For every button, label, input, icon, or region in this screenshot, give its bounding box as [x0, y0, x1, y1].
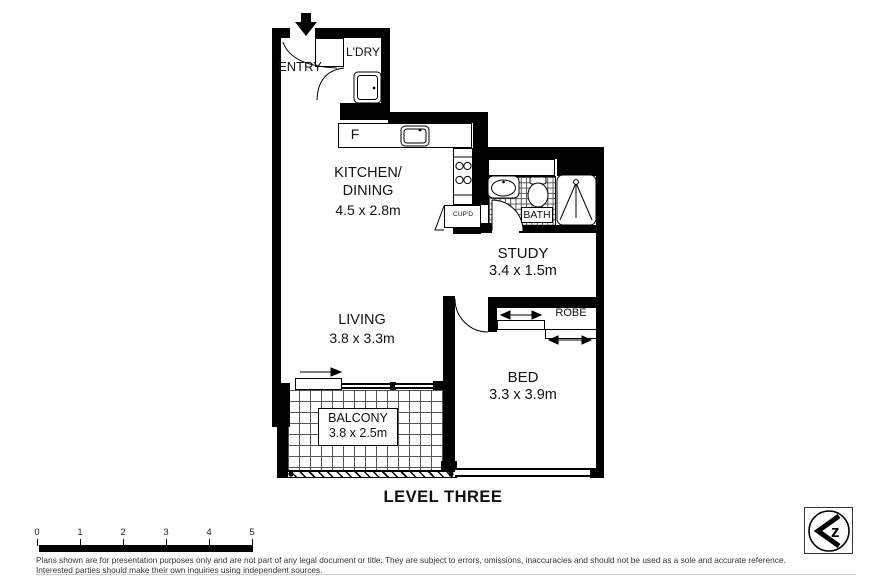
scale-label-2: 2: [120, 527, 125, 538]
disclaimer-line-1: Plans shown are for presentation purpose…: [36, 555, 786, 565]
scale-tick: [37, 539, 38, 546]
wall-balcony-left: [277, 427, 288, 478]
wall-cupboard-stub: [453, 227, 481, 234]
room-label-living: LIVING: [317, 313, 407, 328]
fridge-label: F: [338, 127, 372, 142]
kitchen-counter-column: [453, 148, 473, 205]
robe-sliding-arrow-top-icon: [501, 311, 541, 319]
sliding-door-arrow-icon: [300, 368, 341, 376]
wall-right-outer: [596, 147, 604, 478]
living-window-1: [342, 383, 390, 389]
scale-label-0: 0: [34, 527, 39, 538]
wall-robe-left: [488, 308, 497, 332]
sliding-door-panel: [295, 378, 342, 390]
scale-label-5: 5: [249, 527, 254, 538]
scale-label-3: 3: [163, 527, 168, 538]
room-dims-study: 3.4 x 1.5m: [475, 264, 571, 279]
living-window-2: [395, 383, 433, 389]
scale-label-4: 4: [206, 527, 211, 538]
room-label-laundry: L'DRY: [342, 46, 384, 59]
room-label-balcony: BALCONY: [318, 412, 398, 425]
page-title: LEVEL THREE: [330, 489, 556, 506]
room-label-entry: ENTRY: [274, 60, 326, 74]
room-label-study: STUDY: [475, 246, 571, 262]
wall-kitchen-top: [388, 112, 481, 123]
wall-robe-top: [488, 297, 604, 308]
entry-direction-arrow-icon: [295, 13, 317, 36]
wall-window-corner: [433, 381, 443, 390]
room-label-bath: BATH: [521, 207, 553, 223]
scale-bar-rule: [39, 545, 253, 552]
room-label-bed: BED: [478, 370, 568, 386]
room-label-kitchen-line2: DINING: [320, 184, 416, 199]
floor-plan: ENTRY L'DRY F KITCHEN/ DINING 4.5 x 2.8m…: [0, 0, 882, 577]
wall-left-chunk: [272, 383, 290, 427]
room-label-robe: ROBE: [548, 308, 594, 320]
shower-icon: [557, 175, 596, 225]
bath-vanity: [488, 159, 555, 176]
laundry-tub-icon: [354, 72, 381, 103]
room-dims-balcony: 3.8 x 2.5m: [318, 427, 398, 440]
cupboard-label: CUP'D: [446, 212, 480, 219]
brand-logo-mark: z: [805, 508, 852, 553]
bed-window: [455, 468, 590, 477]
cupboard-door-flap: [435, 206, 444, 230]
wall-laundry-top: [315, 28, 390, 38]
wall-laundry-bottom: [340, 103, 390, 120]
room-dims-kitchen: 4.5 x 2.8m: [320, 203, 416, 218]
wall-bath-bottom-stub: [481, 223, 492, 233]
wall-bath-bottom: [519, 225, 596, 233]
room-label-kitchen-line1: KITCHEN/: [320, 166, 416, 181]
logo-letter: z: [831, 522, 840, 541]
robe-sliding-panel-1: [497, 320, 545, 330]
wall-top-stub: [272, 28, 290, 38]
scale-label-1: 1: [77, 527, 82, 538]
room-dims-living: 3.8 x 3.3m: [317, 331, 407, 346]
bed-door-arc: [455, 299, 488, 332]
wall-bed-corner-right: [590, 468, 604, 478]
footer-divider: [36, 574, 856, 575]
balcony-railing: [288, 470, 455, 478]
robe-sliding-panel-2: [545, 329, 597, 339]
brand-logo: z: [804, 507, 853, 554]
room-dims-bed: 3.3 x 3.9m: [478, 388, 568, 403]
wall-left-outer: [272, 28, 281, 383]
wall-living-bed-divider: [443, 296, 455, 473]
